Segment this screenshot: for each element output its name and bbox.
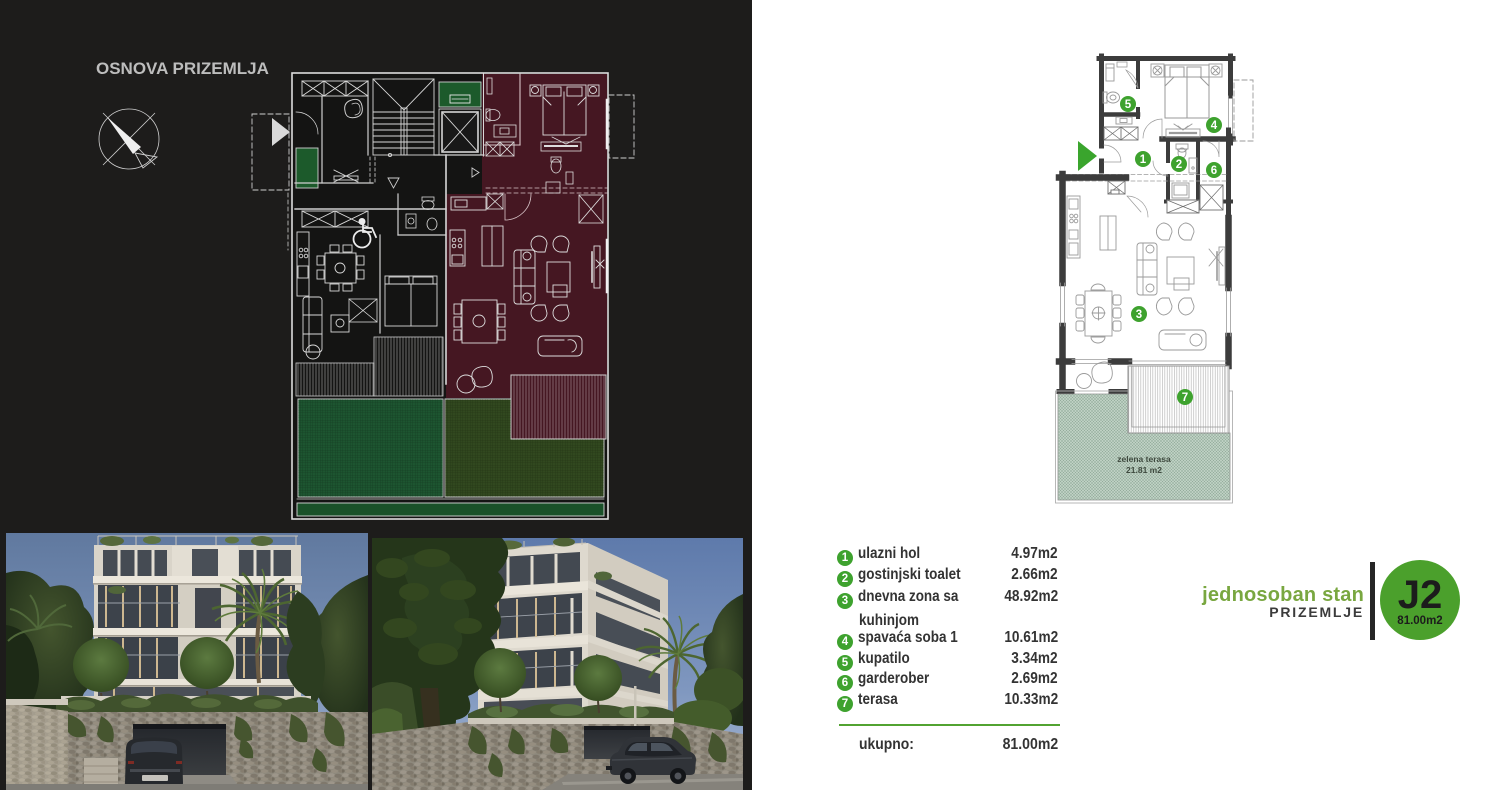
- svg-text:4: 4: [1211, 120, 1218, 132]
- svg-text:2: 2: [1176, 159, 1182, 171]
- svg-text:1: 1: [1140, 154, 1147, 166]
- svg-text:5: 5: [1125, 99, 1132, 111]
- svg-text:7: 7: [1182, 392, 1188, 404]
- svg-text:3: 3: [1136, 309, 1142, 321]
- svg-text:6: 6: [1211, 165, 1217, 177]
- svg-text:zelena terasa: zelena terasa: [1117, 454, 1171, 464]
- svg-text:21.81 m2: 21.81 m2: [1126, 465, 1162, 475]
